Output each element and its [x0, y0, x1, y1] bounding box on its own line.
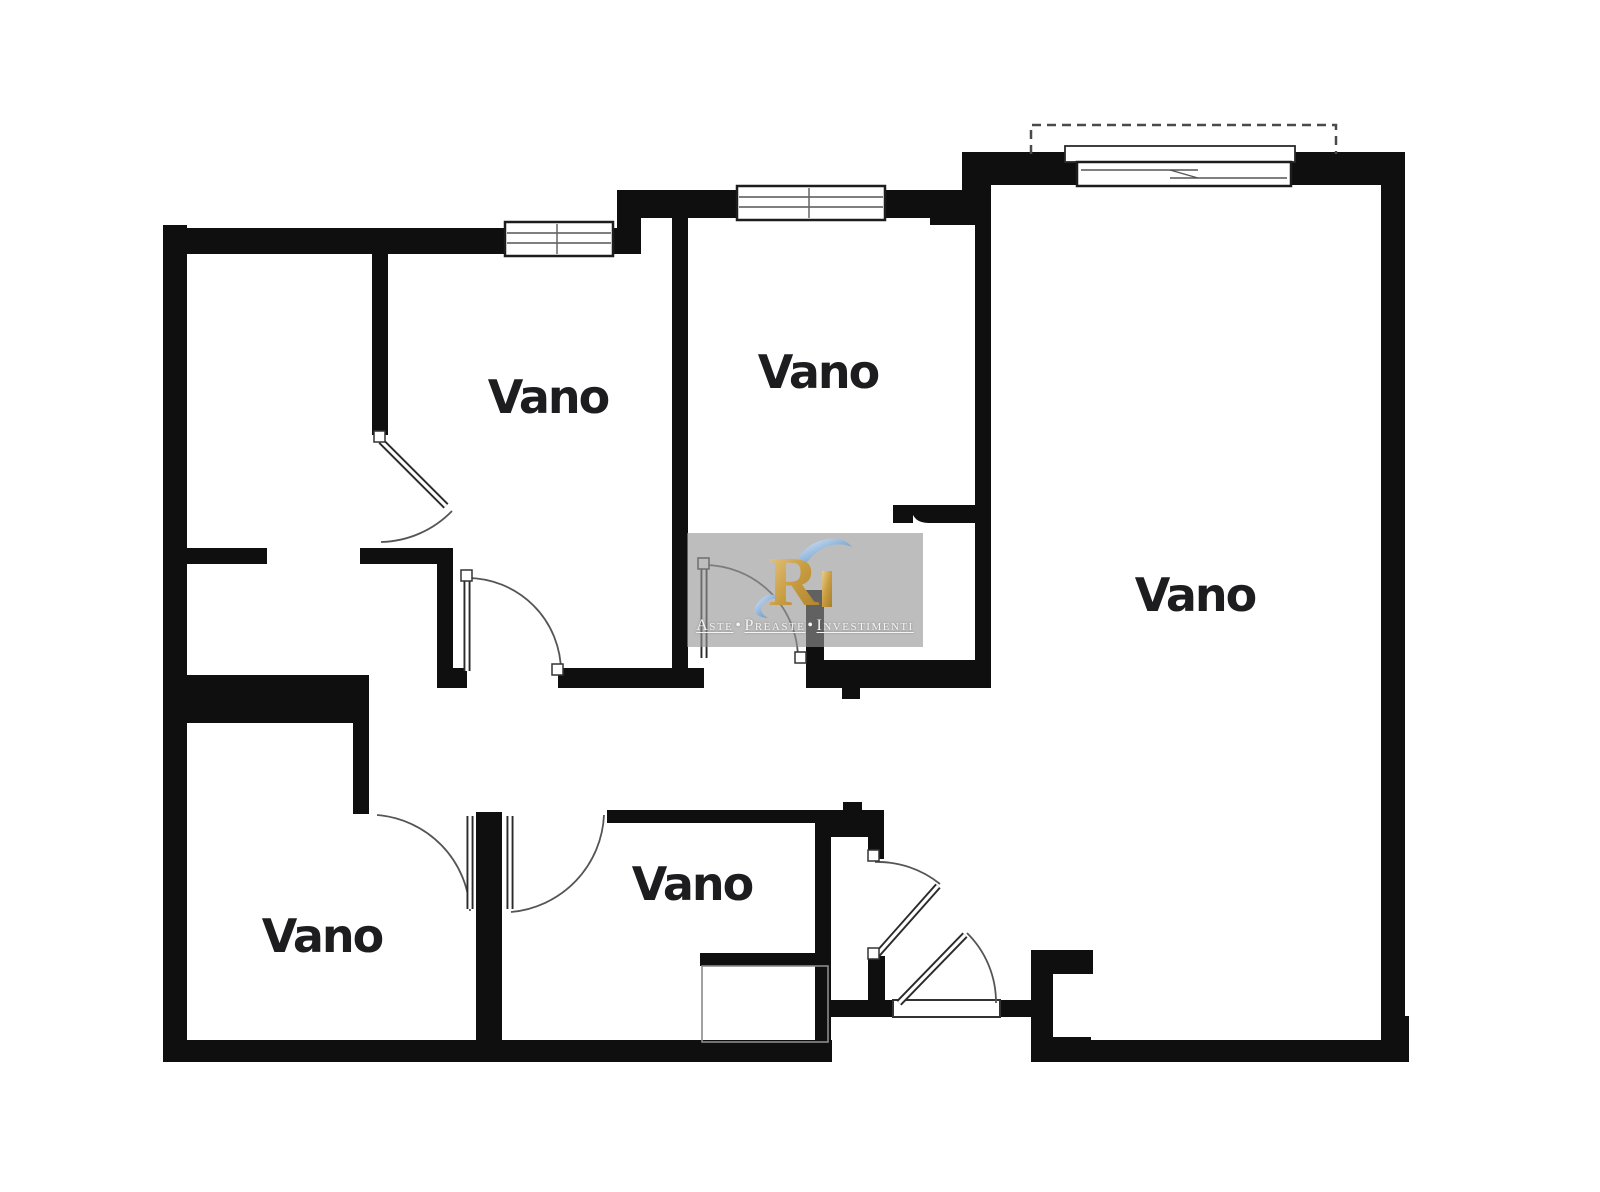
wall-segment [975, 185, 991, 683]
wall-segment [1031, 1037, 1091, 1062]
logo-letter: R [768, 544, 820, 619]
watermark-separator: • [805, 617, 816, 634]
door-swing-arc [381, 511, 452, 542]
wall-segment [1053, 1040, 1405, 1062]
wall-segment [830, 810, 884, 837]
door [510, 815, 604, 912]
room-label-upper-middle: Vano [758, 349, 878, 395]
wall-segment [842, 688, 860, 699]
wall-segment [868, 956, 885, 1004]
watermark-word: Investimenti [817, 617, 914, 634]
watermark-word: Aste [696, 617, 733, 634]
wall-segment [607, 810, 818, 823]
agency-logo-icon: R [730, 535, 880, 619]
wall-segment [353, 675, 369, 814]
door-swing-arc [967, 933, 996, 1003]
watermark: R Aste•Preaste•Investimenti [687, 533, 923, 647]
door-swing-arc [467, 578, 561, 672]
door [467, 578, 561, 672]
door-swing-arc [511, 815, 604, 912]
entrance-threshold [893, 1000, 1000, 1017]
wall-segment [185, 548, 267, 564]
watermark-word: Preaste [744, 617, 805, 634]
wall-segment [806, 660, 991, 688]
wall-segment [476, 812, 502, 1045]
logo-bar [822, 571, 832, 607]
wall-segment [1381, 152, 1405, 1062]
room-label-lower-left: Vano [262, 913, 382, 959]
door-swing-arc [875, 862, 940, 884]
door-swing-arc [377, 815, 470, 911]
wall-segment [828, 1000, 893, 1017]
room-label-lower-middle: Vano [632, 861, 752, 907]
wall-segment [911, 505, 991, 523]
wall-segment [672, 218, 688, 683]
wall-segment [700, 953, 830, 966]
wall-segment [893, 505, 913, 523]
floor-plan-page: Vano Vano Vano Vano Vano R [0, 0, 1600, 1192]
window [737, 186, 885, 220]
wall-segment [843, 802, 862, 813]
door [381, 441, 452, 542]
watermark-text: Aste•Preaste•Investimenti [696, 617, 914, 635]
door-jamb-frames [374, 431, 879, 959]
interior-fixture [702, 966, 828, 1042]
room-label-upper-left: Vano [488, 374, 608, 420]
wall-segment [437, 668, 467, 688]
door [377, 815, 470, 911]
wall-segment [163, 225, 187, 1062]
door [875, 862, 940, 957]
window [505, 222, 613, 256]
wall-segment [173, 675, 365, 723]
watermark-separator: • [733, 617, 744, 634]
room-label-right: Vano [1135, 572, 1255, 618]
wall-segment [437, 548, 453, 678]
door [899, 933, 996, 1003]
window [1065, 146, 1295, 186]
wall-segment [372, 253, 388, 435]
